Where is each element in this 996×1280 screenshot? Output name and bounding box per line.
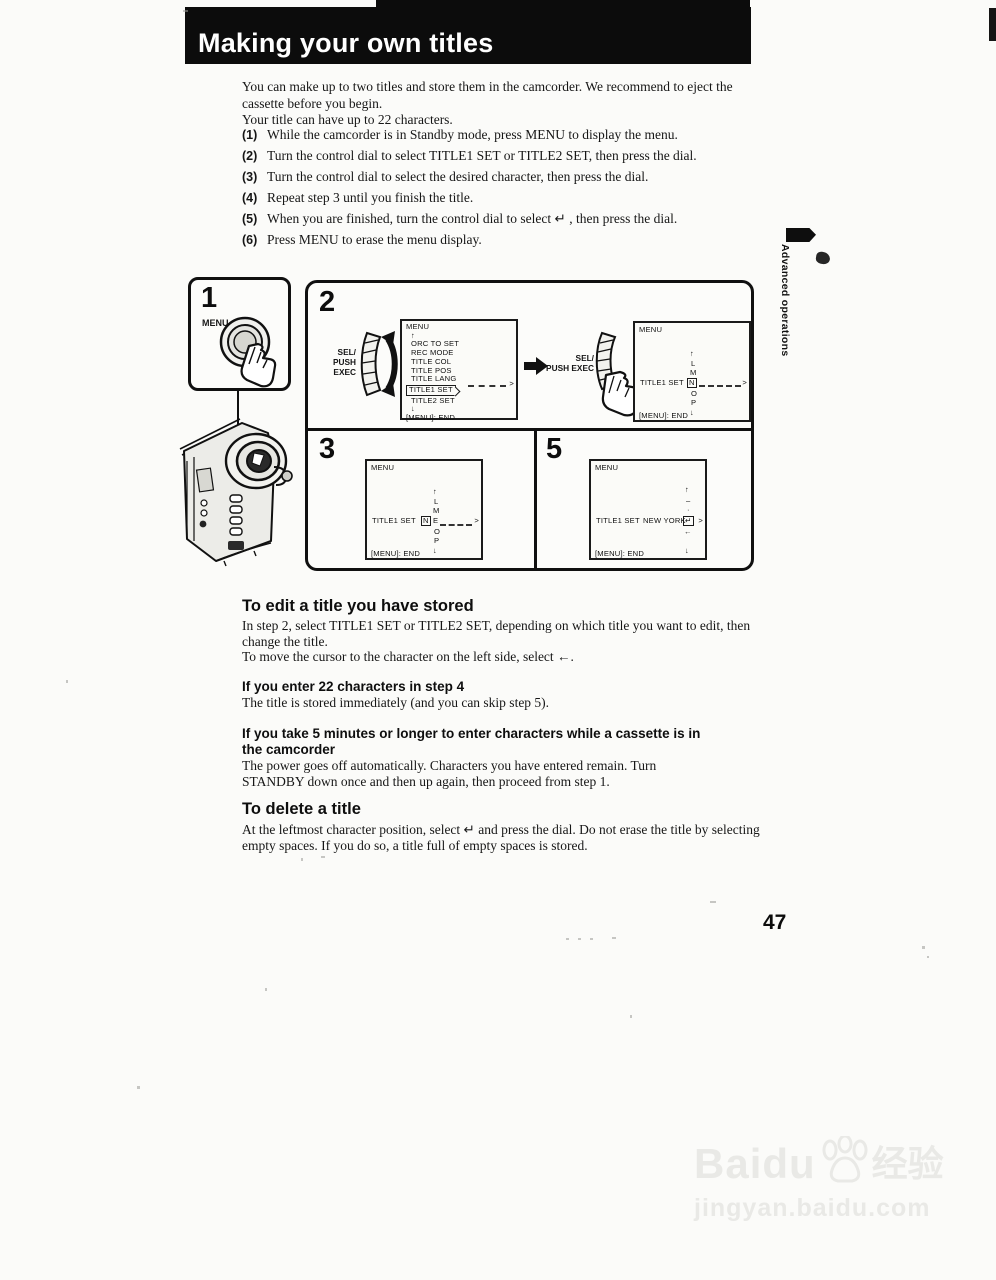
watermark-url: jingyan.baidu.com <box>694 1194 944 1223</box>
sel-push-exec-label: SEL/ PUSH EXEC <box>544 353 594 373</box>
entry-underscores <box>440 524 472 526</box>
row-label: TITLE1 SET <box>372 517 416 526</box>
char-above: ↑ <box>690 350 694 359</box>
scan-speck <box>66 680 68 683</box>
step-6: (6) Press MENU to erase the menu display… <box>242 232 782 253</box>
cursor-char: N <box>687 378 697 388</box>
pointing-hand-icon <box>242 344 276 386</box>
watermark-cjk: 经验 <box>872 1144 944 1184</box>
step-text: While the camcorder is in Standby mode, … <box>267 127 678 143</box>
note-5-minutes-paragraph: The power goes off automatically. Charac… <box>242 758 712 790</box>
step-4: (4) Repeat step 3 until you finish the t… <box>242 190 782 211</box>
chapter-tab-icon <box>786 228 816 242</box>
step-number: (1) <box>242 128 267 142</box>
intro-paragraphs: You can make up to two titles and store … <box>242 79 764 129</box>
note-heading-5-minutes: If you take 5 minutes or longer to enter… <box>242 726 720 758</box>
screen-footer: [MENU]: END <box>595 550 644 559</box>
dial-label-line2: PUSH EXEC <box>310 357 356 377</box>
instruction-steps: (1) While the camcorder is in Standby mo… <box>242 127 782 253</box>
figure-steps-box: 2 3 5 SEL/ PUSH EXEC MENU ↑ ORC TO SET R… <box>305 280 754 571</box>
menu-item: TITLE2 SET <box>402 397 516 406</box>
step-number: (3) <box>242 170 267 184</box>
step3-number: 3 <box>319 435 335 464</box>
row-label: TITLE1 SET <box>640 379 684 388</box>
note-22-chars-paragraph: The title is stored immediately (and you… <box>242 695 766 711</box>
char-above: M <box>690 369 697 378</box>
screen-footer: [MENU]: END <box>402 414 516 423</box>
paw-icon <box>818 1136 870 1184</box>
figure-step1-box: 1 MENU <box>188 277 291 391</box>
scan-speck <box>590 938 593 940</box>
menu-screen-step2-list: MENU ↑ ORC TO SET REC MODE TITLE COL TIT… <box>400 319 518 420</box>
screen-title: MENU <box>371 464 394 473</box>
watermark: Baidu 经验 jingyan.baidu.com <box>694 1136 944 1223</box>
figure-vertical-divider <box>534 428 537 568</box>
step-2: (2) Turn the control dial to select TITL… <box>242 148 782 169</box>
scan-smudge-icon <box>815 251 831 265</box>
step5-number: 5 <box>546 435 562 464</box>
step1-number: 1 <box>201 284 217 313</box>
screen-footer: [MENU]: END <box>639 412 688 421</box>
dial-label-line2: PUSH EXEC <box>544 363 594 373</box>
step-number: (4) <box>242 191 267 205</box>
step-1: (1) While the camcorder is in Standby mo… <box>242 127 782 148</box>
leader-arrow: > <box>698 517 703 526</box>
chapter-label: Advanced operations <box>779 244 791 369</box>
step-number: (5) <box>242 212 267 226</box>
char-above: ↑ <box>685 486 689 495</box>
menu-screen-step2-char: MENU ↑ L M TITLE1 SET N > O P ↓ [MENU]: … <box>633 321 751 422</box>
step-text: Turn the control dial to select the desi… <box>267 169 648 185</box>
scan-speck <box>301 858 303 861</box>
edit-title-cursor-note: To move the cursor to the character on t… <box>242 649 766 665</box>
step-number: (2) <box>242 149 267 163</box>
menu-item: TITLE LANG <box>402 375 516 384</box>
camcorder-illustration <box>174 403 314 567</box>
cursor-char: E <box>433 517 438 526</box>
page-title: Making your own titles <box>198 28 493 59</box>
scan-edge-mark <box>989 8 996 41</box>
delete-title-paragraph: At the leftmost character position, sele… <box>242 822 766 854</box>
char-below: ↓ <box>685 547 689 556</box>
leader-dashes <box>468 385 506 387</box>
scan-speck <box>710 901 716 903</box>
menu-screen-step5: MENU ↑ – · TITLE1 SET NEW YORK ↵ > ← ↓ [… <box>589 459 707 560</box>
screen-title: MENU <box>595 464 618 473</box>
char-below: ↓ <box>433 547 437 556</box>
menu-screen-step3: MENU ↑ L M TITLE1 SET N E > O P ↓ [MENU]… <box>365 459 483 560</box>
char-below: P <box>434 537 439 546</box>
scan-speck <box>566 938 569 940</box>
scan-speck <box>265 988 267 991</box>
edit-title-paragraph: In step 2, select TITLE1 SET or TITLE2 S… <box>242 618 766 650</box>
step-text: When you are finished, turn the control … <box>267 211 677 227</box>
row-label: TITLE1 SET <box>596 517 640 526</box>
step-number: (6) <box>242 233 267 247</box>
char-above: M <box>433 507 440 516</box>
char-below: ↓ <box>690 409 694 418</box>
step-5: (5) When you are finished, turn the cont… <box>242 211 782 232</box>
scan-speck <box>612 937 616 939</box>
leader-arrow: > <box>509 380 514 389</box>
step-3: (3) Turn the control dial to select the … <box>242 169 782 190</box>
scan-speck <box>927 956 929 958</box>
intro-line-1: You can make up to two titles and store … <box>242 79 764 112</box>
dial-label-line1: SEL/ <box>310 347 356 357</box>
scan-speck <box>183 10 188 12</box>
typed-title: NEW YORK <box>643 517 686 526</box>
section-header-bar: Making your own titles <box>185 7 751 64</box>
section-heading-edit-title: To edit a title you have stored <box>242 597 474 616</box>
sel-push-exec-label: SEL/ PUSH EXEC <box>310 347 356 377</box>
scan-speck <box>922 946 925 949</box>
menu-button-press-icon <box>209 316 289 390</box>
char-below: P <box>691 399 696 408</box>
step-text: Press MENU to erase the menu display. <box>267 232 482 248</box>
step-text: Repeat step 3 until you finish the title… <box>267 190 473 206</box>
manual-page: Making your own titles You can make up t… <box>0 0 996 1280</box>
screen-title: MENU <box>402 323 516 332</box>
screen-title: MENU <box>639 326 662 335</box>
dial-label-line1: SEL/ <box>544 353 594 363</box>
scan-speck <box>321 856 325 858</box>
scan-speck <box>630 1015 632 1018</box>
section-heading-delete-title: To delete a title <box>242 800 361 819</box>
leader-arrow: > <box>474 517 479 526</box>
control-dial-icon <box>357 329 401 401</box>
scan-speck <box>137 1086 140 1089</box>
char-above: ↑ <box>433 488 437 497</box>
leader-dashes <box>699 385 741 387</box>
cursor-char: ↵ <box>683 516 694 526</box>
step-text: Turn the control dial to select TITLE1 S… <box>267 148 697 164</box>
step2-number: 2 <box>319 288 335 317</box>
page-number: 47 <box>763 911 786 935</box>
watermark-brand: Baidu <box>694 1144 816 1184</box>
entered-char: N <box>421 516 431 526</box>
note-heading-22-chars: If you enter 22 characters in step 4 <box>242 679 762 695</box>
leader-arrow: > <box>742 379 747 388</box>
screen-footer: [MENU]: END <box>371 550 420 559</box>
scan-speck <box>578 938 581 940</box>
char-below: ← <box>684 528 692 537</box>
char-above: · <box>687 506 690 515</box>
selected-menu-item: TITLE1 SET <box>406 385 456 396</box>
figure-horizontal-divider <box>308 428 751 431</box>
